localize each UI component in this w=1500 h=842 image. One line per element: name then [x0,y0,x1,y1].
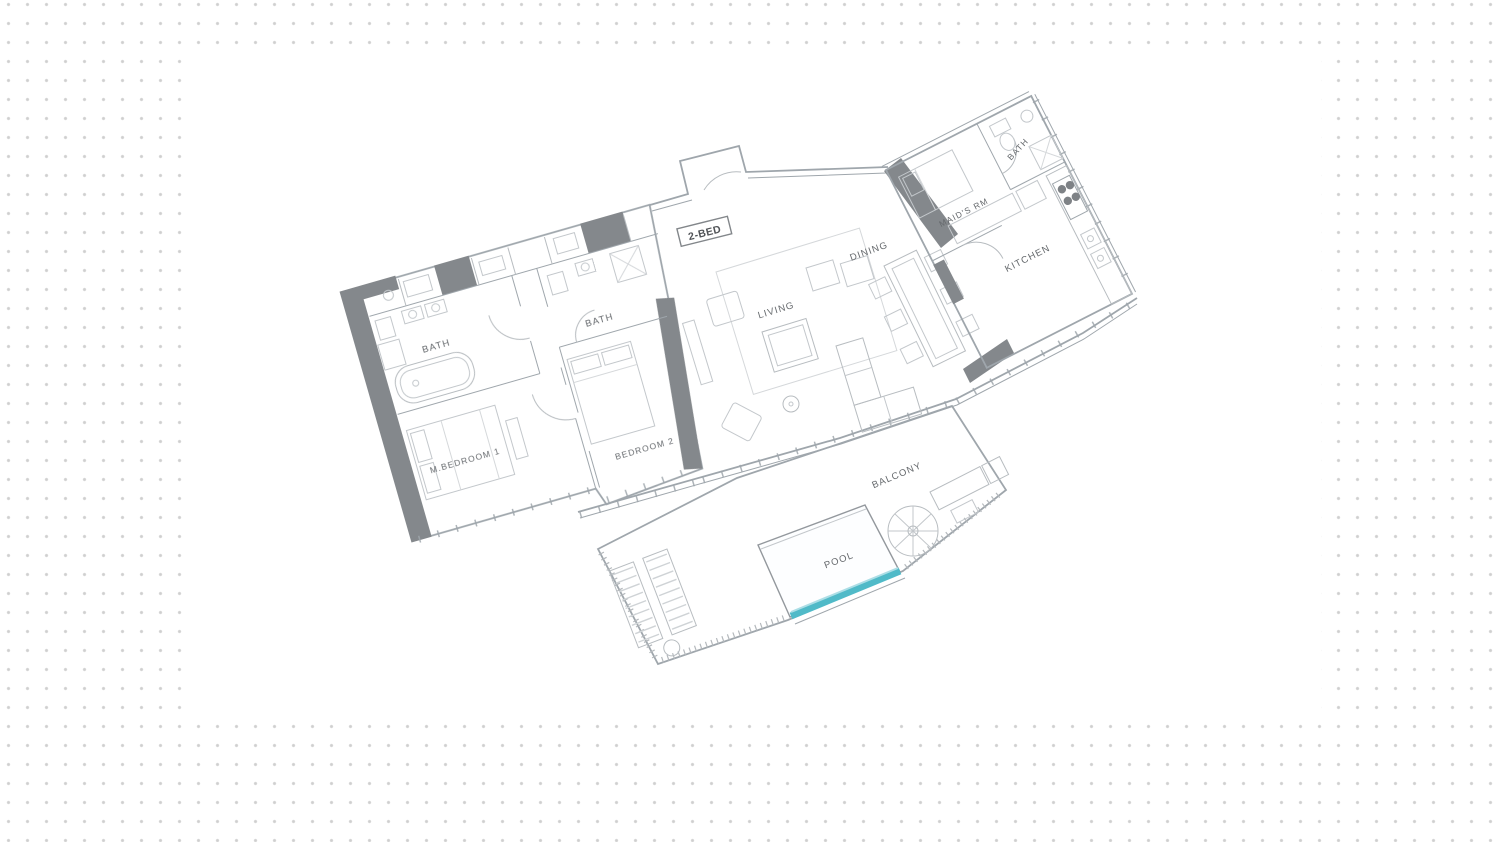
floor-lamp [783,396,799,412]
dining-set [864,241,985,377]
room-label-master-bedroom: M.BEDROOM 1 [429,446,502,476]
wall-block [963,339,1014,383]
room-label-bedroom-2-bath: BATH [584,311,615,330]
daybed [888,506,938,556]
room-label-maids-room: MAID'S RM [937,196,990,229]
tv-console [683,320,713,385]
room-label-balcony: BALCONY [870,460,923,491]
room-label-kitchen: KITCHEN [1003,243,1052,275]
room-label-maids-bath: BATH [1005,136,1030,162]
wall-block [340,286,432,543]
room-label-master-bath: BATH [421,337,452,356]
room-label-bedroom-2: BEDROOM 2 [614,435,675,461]
wall-block [884,158,958,248]
page: { "canvas": { "width": 1500, "height": 8… [0,0,1500,842]
room-label-living: LIVING [757,300,796,322]
floorplan-drawing: BATH M.BEDROOM 1 BATH BEDROOM 2 [0,0,1500,842]
wall-block [933,259,964,304]
unit-type-tag: 2-BED [677,216,732,246]
coffee-table [762,319,818,373]
armchair [706,291,745,327]
bed-2 [567,341,655,444]
left-wing: BATH M.BEDROOM 1 BATH BEDROOM 2 [340,203,726,559]
armchair [721,402,762,442]
